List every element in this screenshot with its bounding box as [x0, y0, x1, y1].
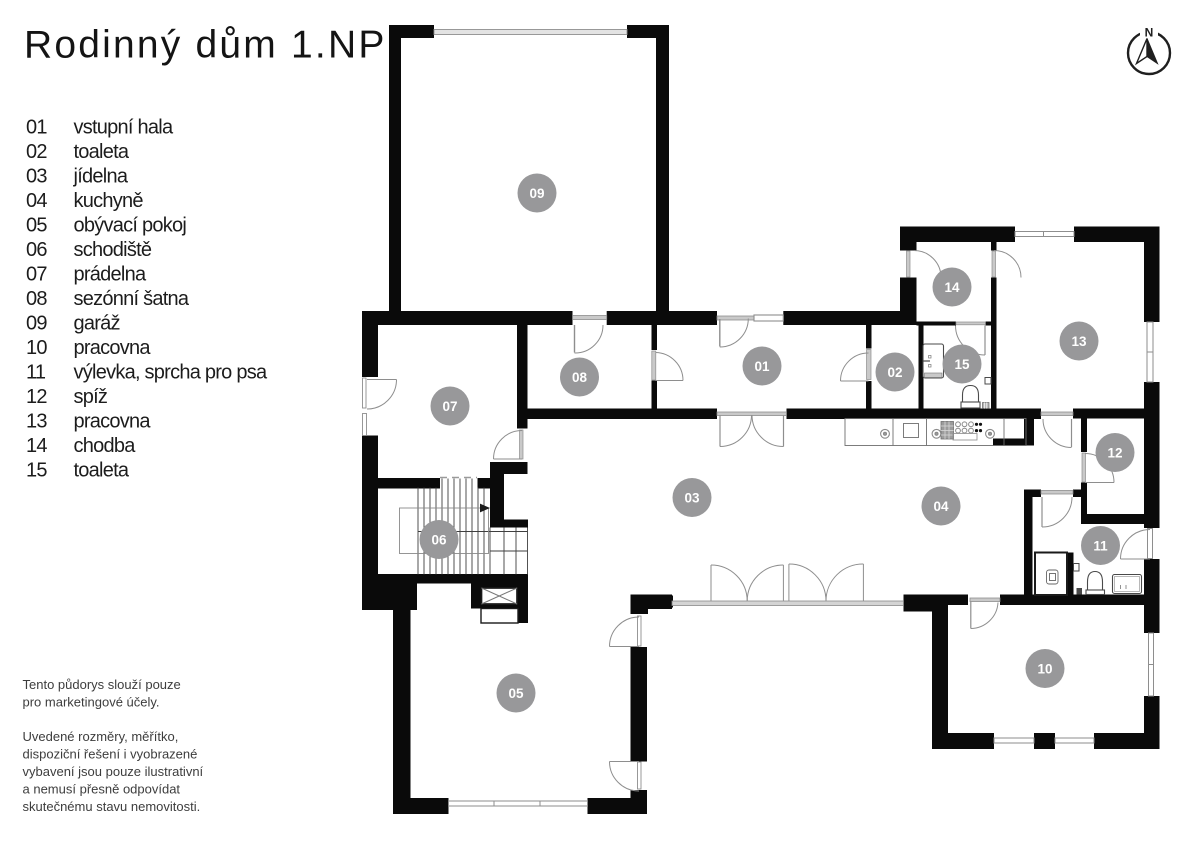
- svg-text:12: 12: [26, 386, 47, 408]
- svg-text:garáž: garáž: [74, 313, 120, 335]
- svg-text:09: 09: [529, 186, 544, 201]
- svg-text:05: 05: [26, 215, 47, 237]
- svg-text:12: 12: [1107, 445, 1122, 460]
- svg-text:09: 09: [26, 313, 47, 335]
- svg-text:02: 02: [26, 141, 47, 163]
- svg-text:14: 14: [26, 435, 47, 457]
- svg-text:07: 07: [26, 264, 47, 286]
- svg-text:sezónní šatna: sezónní šatna: [74, 288, 190, 310]
- svg-text:08: 08: [26, 288, 47, 310]
- svg-text:kuchyně: kuchyně: [74, 190, 144, 212]
- svg-text:a nemusí přesně odpovídat: a nemusí přesně odpovídat: [23, 782, 181, 797]
- svg-text:toaleta: toaleta: [74, 460, 130, 482]
- svg-text:spíž: spíž: [74, 386, 108, 408]
- svg-text:schodiště: schodiště: [74, 239, 152, 261]
- svg-text:15: 15: [954, 357, 970, 372]
- svg-text:10: 10: [1037, 661, 1052, 676]
- svg-text:pracovna: pracovna: [74, 411, 152, 433]
- svg-text:13: 13: [1071, 334, 1087, 349]
- svg-text:10: 10: [26, 337, 47, 359]
- svg-text:dispoziční řešení i vyobrazené: dispoziční řešení i vyobrazené: [23, 747, 198, 762]
- svg-text:11: 11: [1093, 538, 1108, 553]
- svg-text:04: 04: [933, 499, 949, 514]
- svg-text:vstupní hala: vstupní hala: [74, 117, 174, 139]
- svg-text:jídelna: jídelna: [73, 166, 129, 188]
- svg-text:Tento půdorys slouží pouze: Tento půdorys slouží pouze: [23, 677, 181, 692]
- svg-text:01: 01: [26, 117, 47, 139]
- svg-text:11: 11: [26, 362, 46, 384]
- svg-text:08: 08: [572, 370, 588, 385]
- svg-text:03: 03: [26, 166, 47, 188]
- svg-text:05: 05: [508, 686, 524, 701]
- svg-text:pro marketingové účely.: pro marketingové účely.: [23, 695, 160, 710]
- svg-text:06: 06: [431, 532, 447, 547]
- svg-text:toaleta: toaleta: [74, 141, 130, 163]
- svg-text:výlevka, sprcha pro psa: výlevka, sprcha pro psa: [74, 362, 268, 384]
- svg-text:Rodinný dům 1.NP: Rodinný dům 1.NP: [24, 24, 387, 67]
- svg-text:14: 14: [944, 280, 960, 295]
- svg-text:prádelna: prádelna: [74, 264, 147, 286]
- svg-text:obývací pokoj: obývací pokoj: [74, 215, 187, 237]
- svg-text:13: 13: [26, 411, 47, 433]
- svg-text:01: 01: [754, 359, 770, 374]
- svg-text:15: 15: [26, 460, 47, 482]
- svg-text:skutečnému stavu nemovitosti.: skutečnému stavu nemovitosti.: [23, 799, 201, 814]
- svg-text:03: 03: [684, 490, 700, 505]
- svg-text:N: N: [1145, 26, 1154, 40]
- svg-text:04: 04: [26, 190, 47, 212]
- svg-text:vybavení jsou pouze ilustrativ: vybavení jsou pouze ilustrativní: [23, 764, 204, 779]
- svg-text:02: 02: [887, 365, 902, 380]
- svg-text:07: 07: [442, 399, 457, 414]
- svg-text:pracovna: pracovna: [74, 337, 152, 359]
- svg-text:06: 06: [26, 239, 47, 261]
- svg-text:chodba: chodba: [74, 435, 137, 457]
- svg-text:Uvedené rozměry, měřítko,: Uvedené rozměry, měřítko,: [23, 729, 179, 744]
